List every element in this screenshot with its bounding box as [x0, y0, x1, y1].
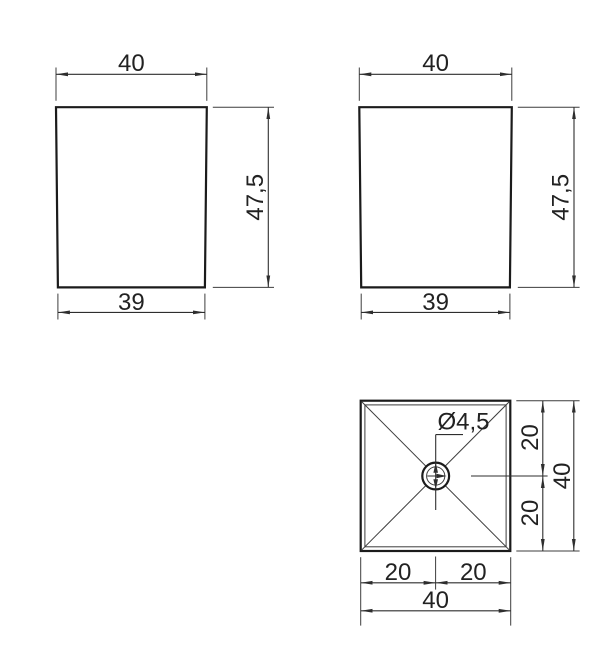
dim-label-front-top-width: 40 — [118, 50, 145, 77]
dim-label-bottom-left: 20 — [385, 559, 412, 586]
technical-drawing: 40 47,5 39 40 47,5 39 — [0, 0, 615, 658]
dim-label-side-height: 47,5 — [548, 174, 575, 221]
dim-label-side-bottom-width: 39 — [422, 289, 449, 316]
bottom-view: Ø4,5 20 20 40 20 20 40 — [361, 401, 580, 626]
hole-diameter-label: Ø4,5 — [438, 409, 490, 436]
dim-label-right-lower: 20 — [517, 500, 544, 527]
dim-label-bottom-right: 20 — [460, 559, 487, 586]
side-view: 40 47,5 39 — [359, 50, 579, 320]
drawing-canvas: 40 47,5 39 40 47,5 39 — [0, 0, 615, 658]
front-view-outline — [56, 107, 207, 287]
dim-label-front-bottom-width: 39 — [118, 289, 145, 316]
dim-label-front-height: 47,5 — [242, 174, 269, 221]
dim-label-bottom-total: 40 — [422, 587, 449, 614]
side-view-outline — [359, 107, 512, 287]
dim-label-right-total: 40 — [549, 463, 576, 490]
front-view: 40 47,5 39 — [56, 50, 274, 320]
dim-label-right-upper: 20 — [517, 424, 544, 451]
dim-label-side-top-width: 40 — [422, 50, 449, 77]
